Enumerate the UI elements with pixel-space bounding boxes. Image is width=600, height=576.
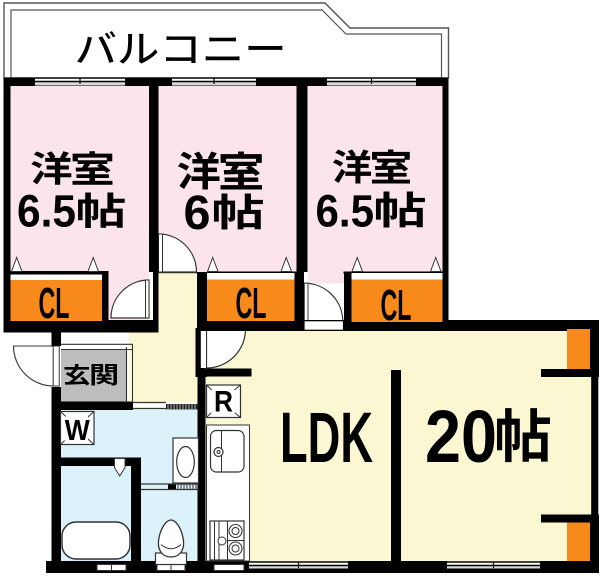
svg-text:CL: CL xyxy=(381,281,412,330)
svg-text:R: R xyxy=(214,386,233,419)
svg-text:W: W xyxy=(65,415,91,447)
svg-text:6: 6 xyxy=(184,187,211,240)
svg-text:CL: CL xyxy=(39,279,70,328)
svg-text:LDK: LDK xyxy=(280,399,373,478)
svg-text:6.5: 6.5 xyxy=(17,186,76,237)
svg-text:20: 20 xyxy=(425,395,497,478)
svg-text:CL: CL xyxy=(236,279,267,328)
svg-text:6.5: 6.5 xyxy=(316,186,375,237)
